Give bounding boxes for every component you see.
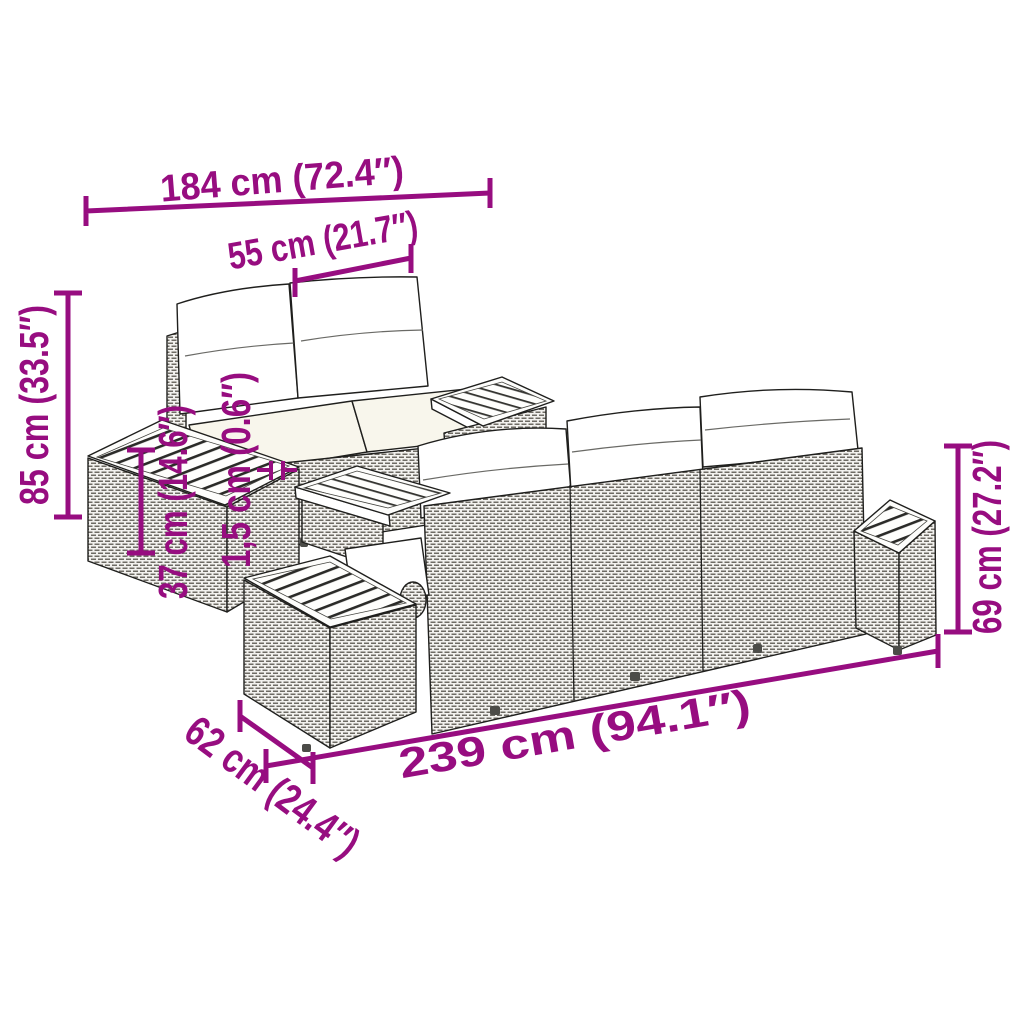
dimension-total-height: 85 cm (33.5″) <box>11 293 82 517</box>
dimension-label-seat-width: 55 cm (21.7″) <box>225 204 421 279</box>
dimension-total-width: 184 cm (72.4″) <box>86 150 490 226</box>
sofa-foot <box>490 706 500 715</box>
dimension-label-side-table-height: 37 cm (14.6″) <box>150 405 196 599</box>
table-front-face <box>330 605 416 748</box>
dimension-label-total-height: 85 cm (33.5″) <box>11 305 57 505</box>
back-cushion <box>290 277 428 398</box>
dimension-label-tabletop-thickness: 1,5 cm (0.6″) <box>213 372 259 568</box>
dimension-label-back-height: 69 cm (27.2″) <box>964 440 1010 634</box>
dimension-back-height: 69 cm (27.2″) <box>944 440 1010 634</box>
sofa-foot <box>753 644 762 653</box>
sofa-foot <box>630 672 640 681</box>
table-foot <box>302 744 311 752</box>
sofa-foot <box>893 646 902 655</box>
dimension-diagram: 184 cm (72.4″) 55 cm (21.7″) 85 cm (33.5… <box>0 0 1024 1024</box>
